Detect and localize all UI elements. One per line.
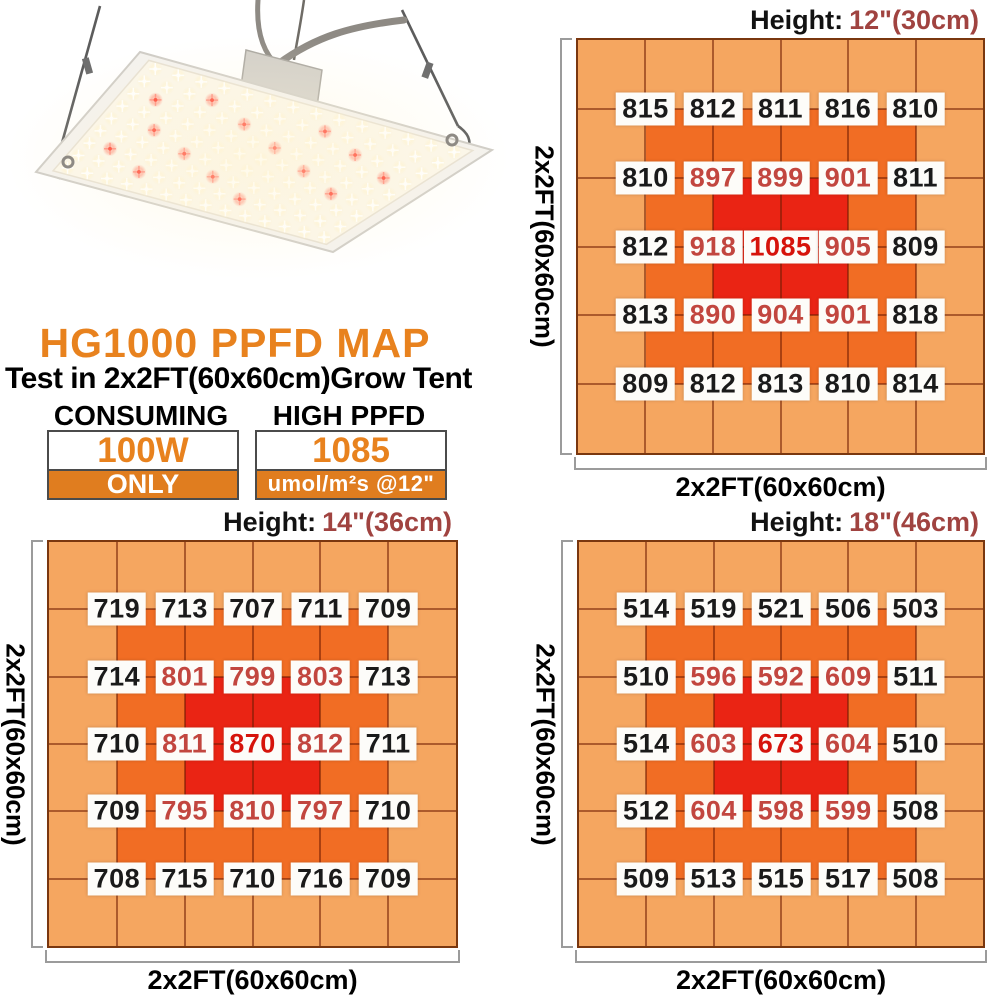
ppfd-value: 812 [684, 92, 743, 125]
ppfd-value: 812 [291, 728, 350, 761]
ppfd-value: 604 [819, 728, 878, 761]
ppfd-value: 713 [359, 660, 418, 693]
ppfd-value: 719 [88, 593, 147, 626]
ppfd-value: 811 [156, 728, 213, 761]
y-axis-bracket [31, 540, 43, 948]
consuming-box: 100W ONLY [47, 430, 239, 500]
ppfd-value: 510 [617, 660, 676, 693]
ppfd-value: 592 [752, 660, 811, 693]
ppfd-map-14in: Height:14"(36cm) 2x2FT(60x60cm) 71971370… [47, 540, 458, 948]
high-ppfd-box: 1085 umol/m²s @12" [255, 430, 447, 500]
y-axis-bracket [560, 38, 572, 455]
ppfd-value: 818 [886, 299, 945, 332]
ppfd-value: 815 [616, 92, 675, 125]
ppfd-value: 598 [752, 795, 811, 828]
height-label: Height: [750, 507, 843, 537]
ppfd-value: 810 [886, 92, 945, 125]
ppfd-value: 716 [291, 862, 350, 895]
ppfd-value: 710 [88, 728, 147, 761]
ppfd-value: 513 [684, 862, 743, 895]
ppfd-value: 1085 [743, 230, 817, 263]
ppfd-value: 713 [155, 593, 214, 626]
ppfd-value: 673 [752, 728, 811, 761]
product-photo [0, 0, 520, 330]
ppfd-value: 711 [360, 728, 417, 761]
ppfd-value: 811 [752, 92, 809, 125]
ppfd-value: 596 [684, 660, 743, 693]
ppfd-value: 510 [886, 728, 945, 761]
ppfd-value: 709 [88, 795, 147, 828]
ppfd-value: 709 [359, 593, 418, 626]
ppfd-value: 511 [887, 660, 944, 693]
ppfd-value: 508 [886, 795, 945, 828]
ppfd-value: 803 [291, 660, 350, 693]
height-label: Height: [223, 507, 316, 537]
y-axis-label-wrap: 2x2FT(60x60cm) [529, 38, 559, 455]
ppfd-map-12in: Height:12"(30cm) 2x2FT(60x60cm) 81581281… [576, 38, 985, 455]
ppfd-value: 710 [223, 862, 282, 895]
ppfd-value: 918 [684, 230, 743, 263]
ppfd-value: 810 [616, 161, 675, 194]
ppfd-value: 904 [751, 299, 810, 332]
y-axis-label-wrap: 2x2FT(60x60cm) [0, 540, 30, 948]
x-axis-bracket [574, 457, 987, 470]
high-ppfd-header: HIGH PPFD [255, 400, 443, 432]
ppfd-value: 517 [819, 862, 878, 895]
high-ppfd-value: 1085 [257, 432, 445, 469]
map-height-title: Height:18"(46cm) [750, 507, 979, 537]
ppfd-value: 870 [223, 728, 282, 761]
ppfd-value: 814 [886, 368, 945, 401]
ppfd-value: 811 [887, 161, 944, 194]
ppfd-value: 890 [684, 299, 743, 332]
ppfd-value: 809 [616, 368, 675, 401]
height-label: Height: [750, 5, 843, 35]
ppfd-value: 812 [616, 230, 675, 263]
ppfd-value: 514 [617, 728, 676, 761]
ppfd-value: 899 [751, 161, 810, 194]
y-axis-label: 2x2FT(60x60cm) [529, 145, 560, 347]
y-axis-label-wrap: 2x2FT(60x60cm) [530, 540, 560, 948]
x-axis-label: 2x2FT(60x60cm) [577, 964, 985, 996]
ppfd-value: 512 [617, 795, 676, 828]
ppfd-value: 515 [752, 862, 811, 895]
ppfd-value: 810 [819, 368, 878, 401]
ppfd-value: 709 [359, 862, 418, 895]
ppfd-value: 509 [617, 862, 676, 895]
x-axis-bracket [45, 950, 460, 963]
height-value: 12"(30cm) [849, 5, 979, 35]
high-ppfd-note: umol/m²s @12" [257, 469, 445, 498]
ppfd-value: 813 [751, 368, 810, 401]
consuming-note: ONLY [49, 469, 237, 498]
ppfd-value: 810 [223, 795, 282, 828]
ppfd-value: 711 [292, 593, 349, 626]
y-axis-bracket [561, 540, 573, 948]
ppfd-value: 604 [684, 795, 743, 828]
height-value: 18"(46cm) [849, 507, 979, 537]
y-axis-label: 2x2FT(60x60cm) [0, 643, 31, 845]
ppfd-value: 514 [617, 593, 676, 626]
map-height-title: Height:14"(36cm) [223, 507, 452, 537]
ppfd-map-18in: Height:18"(46cm) 2x2FT(60x60cm) 51451952… [577, 540, 985, 948]
ppfd-value: 816 [819, 92, 878, 125]
ppfd-value: 521 [752, 593, 811, 626]
ppfd-value: 506 [819, 593, 878, 626]
ppfd-infographic: { "title_block": { "title": "HG1000 PPFD… [0, 0, 1000, 1000]
ppfd-value: 809 [886, 230, 945, 263]
ppfd-value: 812 [684, 368, 743, 401]
ppfd-value: 707 [223, 593, 282, 626]
ppfd-value: 901 [819, 299, 878, 332]
y-axis-label: 2x2FT(60x60cm) [530, 643, 561, 845]
x-axis-label: 2x2FT(60x60cm) [576, 471, 985, 503]
ppfd-value: 813 [616, 299, 675, 332]
ppfd-value: 905 [819, 230, 878, 263]
ppfd-value: 801 [155, 660, 214, 693]
ppfd-value: 710 [359, 795, 418, 828]
ppfd-value: 708 [88, 862, 147, 895]
map-height-title: Height:12"(30cm) [750, 5, 979, 35]
ppfd-value: 503 [886, 593, 945, 626]
ppfd-value: 609 [819, 660, 878, 693]
grow-light-image [0, 0, 520, 330]
ppfd-value: 795 [155, 795, 214, 828]
ppfd-value: 603 [684, 728, 743, 761]
ppfd-value: 797 [291, 795, 350, 828]
consuming-value: 100W [49, 432, 237, 469]
height-value: 14"(36cm) [322, 507, 452, 537]
light-glow [6, 36, 510, 280]
ppfd-grid-12in: 8158128118168108108978999018118129181085… [576, 38, 985, 455]
ppfd-value: 508 [886, 862, 945, 895]
ppfd-value: 799 [223, 660, 282, 693]
ppfd-value: 519 [684, 593, 743, 626]
ppfd-grid-14in: 7197137077117097148017998037137108118708… [47, 540, 458, 948]
ppfd-value: 714 [88, 660, 147, 693]
ppfd-value: 897 [684, 161, 743, 194]
page-title: HG1000 PPFD MAP [10, 320, 460, 367]
ppfd-grid-18in: 5145195215065035105965926095115146036736… [577, 540, 985, 948]
x-axis-bracket [575, 950, 987, 963]
x-axis-label: 2x2FT(60x60cm) [47, 964, 458, 996]
ppfd-value: 901 [819, 161, 878, 194]
page-subtitle: Test in 2x2FT(60x60cm)Grow Tent [5, 362, 465, 396]
ppfd-value: 599 [819, 795, 878, 828]
ppfd-value: 715 [155, 862, 214, 895]
consuming-header: CONSUMING [47, 400, 235, 432]
